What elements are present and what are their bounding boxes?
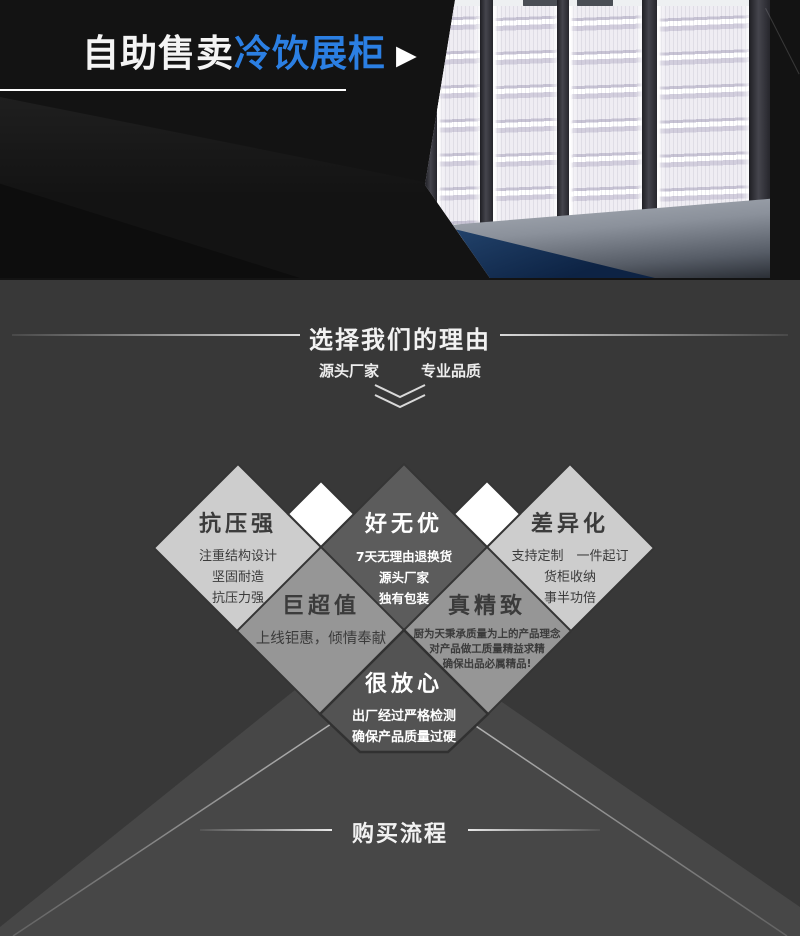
- reasons-subtitle: 源头厂家 专业品质: [0, 360, 800, 381]
- diamond-line: 对产品做工质量精益求精: [372, 642, 602, 657]
- diamond-henfangxin: 很放心 出厂经过严格检测 确保产品质量过硬: [304, 666, 504, 748]
- cooler-frame: [425, 0, 437, 240]
- led-strip: [437, 6, 480, 242]
- subtitle-quality: 专业品质: [421, 360, 481, 381]
- cooler-door: [569, 6, 642, 242]
- cooler-frame: [557, 0, 569, 240]
- diamond-title: 很放心: [304, 666, 504, 698]
- page-title: 自助售卖冷饮展柜▶: [82, 30, 418, 80]
- diamond-title: 真精致: [372, 588, 602, 620]
- hero-banner: 自助售卖冷饮展柜▶: [0, 0, 800, 280]
- cooler-door: [493, 6, 557, 242]
- purchase-line-right: [468, 829, 600, 831]
- diamond-line: 厨为天秉承质量为上的产品理念: [372, 627, 602, 642]
- reasons-heading: 选择我们的理由: [0, 320, 800, 355]
- title-white-part: 自助售卖: [82, 32, 234, 75]
- play-icon: ▶: [396, 40, 418, 71]
- diamond-zhenjingzhi: 真精致 厨为天秉承质量为上的产品理念 对产品做工质量精益求精 确保出品必属精品!: [372, 588, 602, 672]
- diamond-line: 支持定制 一件起订: [455, 546, 685, 567]
- diamond-line: 货柜收纳: [455, 567, 685, 588]
- diamond-line: 确保产品质量过硬: [304, 727, 504, 748]
- product-detail-page: 自助售卖冷饮展柜▶: [0, 0, 800, 936]
- cooler-frame: [480, 0, 493, 240]
- title-blue-part: 冷饮展柜: [234, 32, 386, 75]
- cooler-frame: [642, 0, 657, 240]
- cooler-door: [437, 6, 480, 242]
- subtitle-factory: 源头厂家: [319, 360, 379, 381]
- diamond-title: 差异化: [455, 506, 685, 538]
- heading-line-right: [500, 334, 788, 336]
- reasons-section: 选择我们的理由 源头厂家 专业品质 抗压强 注重结构设计 坚固耐造 抗压力强 好…: [0, 280, 800, 936]
- led-strip: [569, 6, 642, 242]
- diamond-line: 出厂经过严格检测: [304, 706, 504, 727]
- double-chevron-down-icon: [374, 384, 426, 410]
- hero-corner-facet-line: [765, 8, 799, 74]
- product-photo: [425, 0, 770, 278]
- title-underline: [0, 89, 346, 91]
- led-strip: [493, 6, 557, 242]
- purchase-heading: 购买流程: [0, 816, 800, 848]
